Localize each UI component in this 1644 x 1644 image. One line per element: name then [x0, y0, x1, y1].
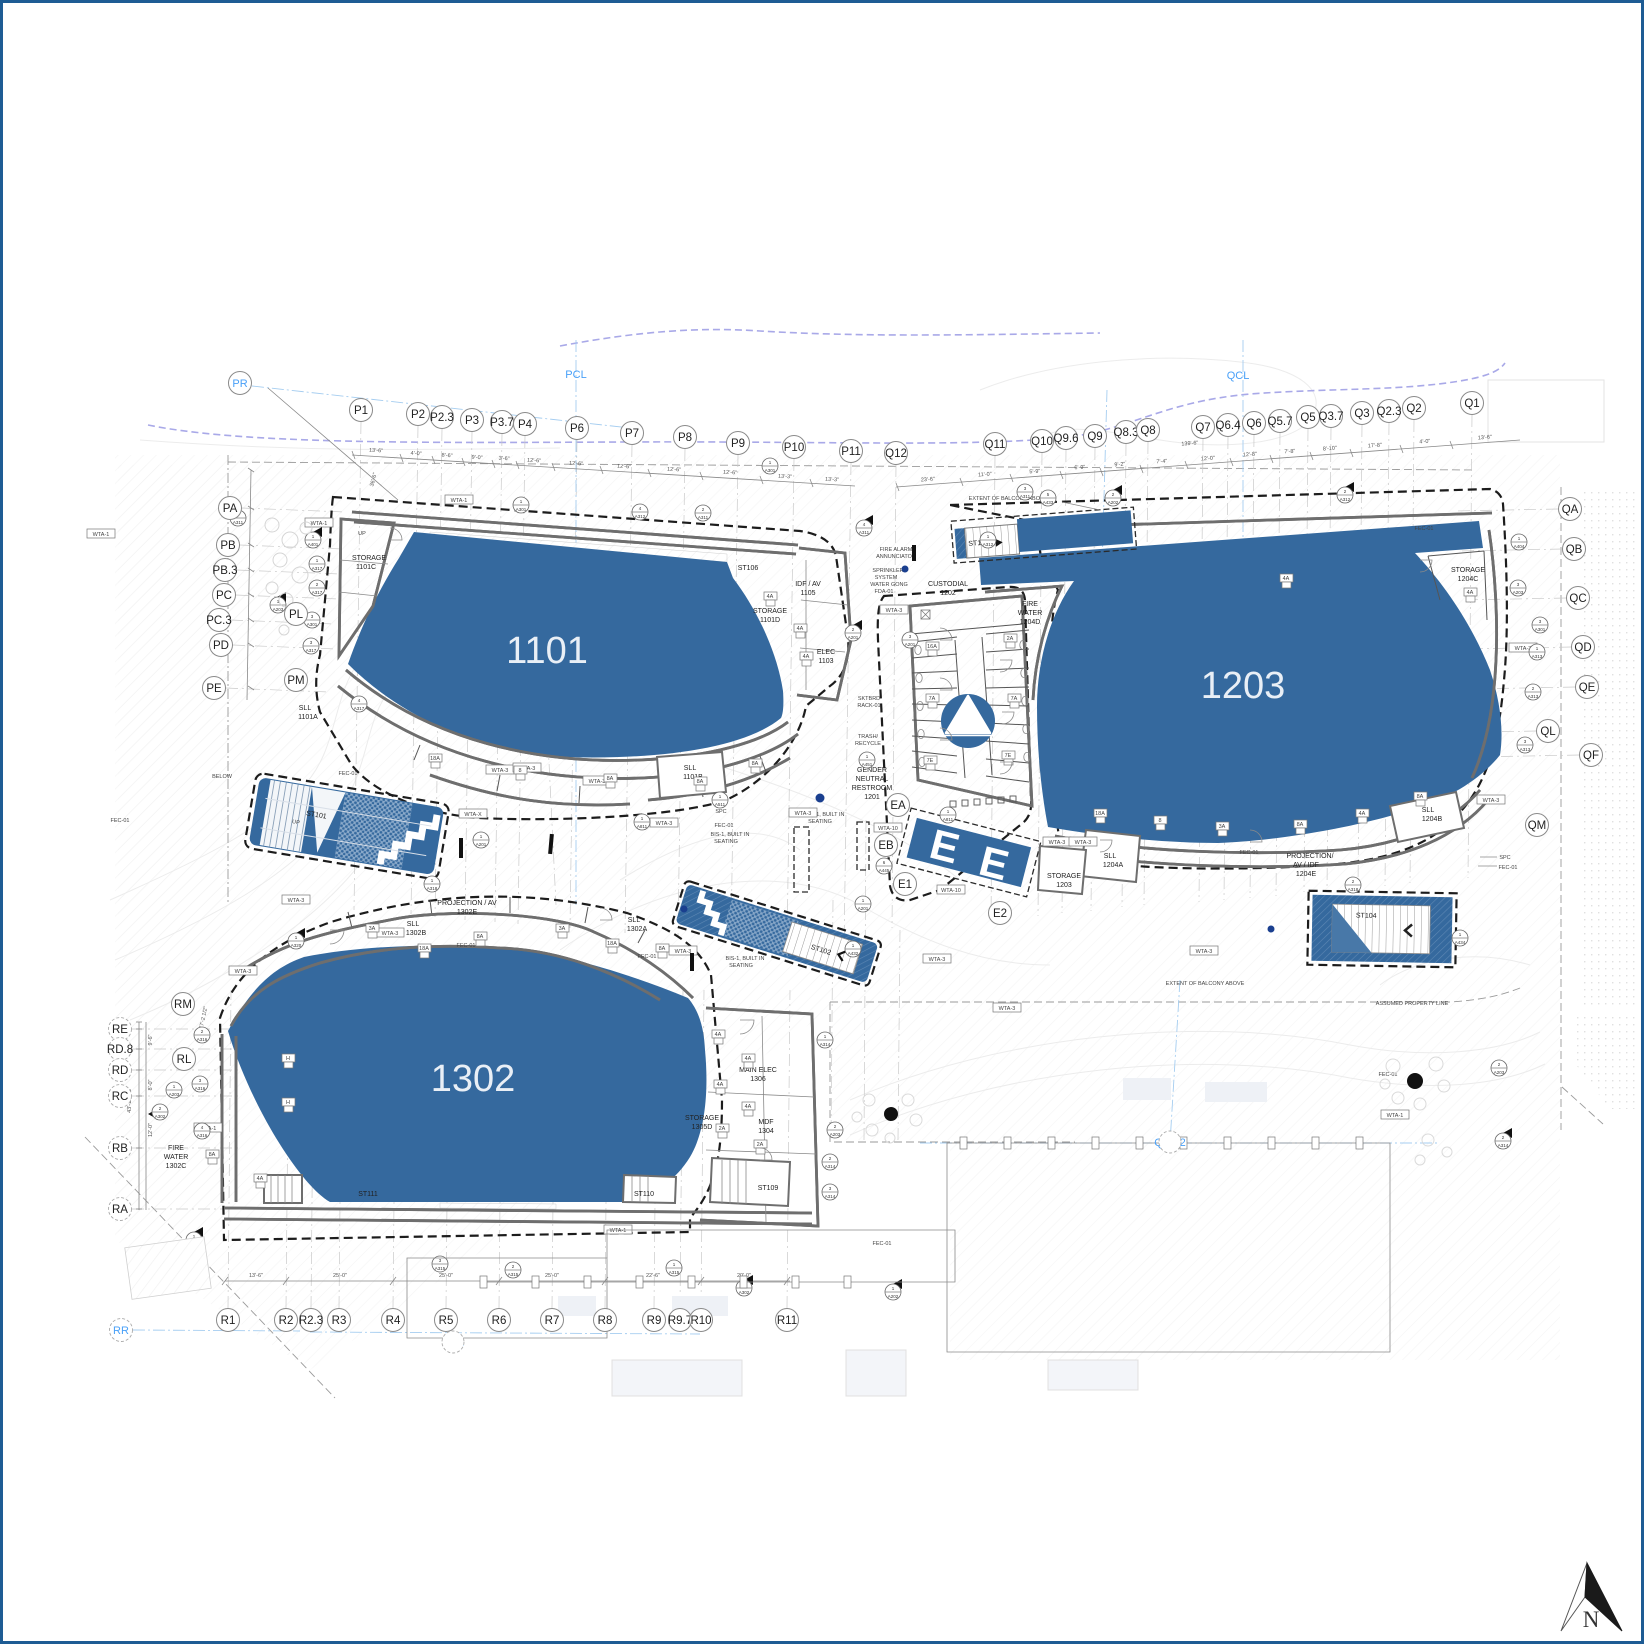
svg-text:R9.7: R9.7 — [668, 1315, 692, 1327]
svg-text:A313: A313 — [1532, 654, 1543, 659]
svg-text:A202: A202 — [888, 1294, 899, 1299]
svg-text:1204A: 1204A — [1103, 862, 1124, 869]
svg-text:H: H — [286, 1100, 290, 1106]
svg-text:WTA-3: WTA-3 — [886, 608, 903, 614]
svg-text:A811: A811 — [637, 824, 648, 829]
svg-text:12'-6": 12'-6" — [723, 470, 737, 477]
svg-text:FEC-01: FEC-01 — [111, 818, 130, 824]
svg-text:A201: A201 — [905, 642, 916, 647]
svg-text:8A: 8A — [1297, 822, 1304, 828]
svg-text:QD: QD — [1574, 642, 1591, 654]
svg-text:2A: 2A — [1007, 636, 1014, 642]
svg-text:7'-4": 7'-4" — [1156, 459, 1167, 466]
svg-text:13'-6": 13'-6" — [1478, 434, 1492, 441]
svg-text:WTA-3: WTA-3 — [675, 949, 692, 955]
svg-text:WTA-1: WTA-1 — [451, 498, 468, 504]
svg-text:18A: 18A — [1095, 811, 1105, 817]
svg-text:8A: 8A — [1417, 794, 1424, 800]
svg-text:3A: 3A — [559, 926, 566, 932]
svg-text:QF: QF — [1583, 750, 1599, 762]
svg-text:Q6.4: Q6.4 — [1216, 420, 1242, 432]
svg-text:Q9: Q9 — [1087, 431, 1102, 443]
svg-text:Q3.7: Q3.7 — [1319, 411, 1344, 423]
svg-text:Q12: Q12 — [885, 448, 907, 460]
svg-text:SPC: SPC — [715, 809, 726, 815]
svg-text:A313: A313 — [1520, 747, 1531, 752]
svg-text:A317: A317 — [312, 590, 323, 595]
svg-text:A311: A311 — [233, 520, 244, 525]
svg-text:P9: P9 — [731, 438, 745, 450]
svg-text:1306: 1306 — [750, 1076, 766, 1083]
svg-text:SKTBRD: SKTBRD — [858, 696, 880, 702]
svg-text:FEC-01: FEC-01 — [1499, 865, 1518, 871]
svg-text:A401: A401 — [308, 542, 319, 547]
svg-text:Q6: Q6 — [1246, 418, 1261, 430]
svg-text:A434: A434 — [1455, 940, 1466, 945]
svg-text:A404: A404 — [1514, 544, 1525, 549]
svg-text:WTA-3: WTA-3 — [1196, 949, 1213, 955]
svg-text:WTA-1: WTA-1 — [1387, 1113, 1404, 1119]
svg-text:A203: A203 — [169, 1092, 180, 1097]
svg-text:4A: 4A — [803, 654, 810, 660]
svg-text:FDA-01: FDA-01 — [875, 589, 894, 595]
svg-text:SLL: SLL — [684, 765, 697, 772]
svg-text:BIS-1, BUILT IN: BIS-1, BUILT IN — [726, 956, 765, 962]
svg-text:A203: A203 — [1494, 1070, 1505, 1075]
svg-text:A311: A311 — [859, 530, 870, 535]
svg-text:8A: 8A — [752, 761, 759, 767]
svg-text:ANNUNCIATOR: ANNUNCIATOR — [876, 554, 916, 560]
svg-text:PC.3: PC.3 — [206, 615, 232, 627]
svg-text:4A: 4A — [745, 1056, 752, 1062]
svg-text:QA: QA — [1562, 504, 1579, 516]
svg-text:WTA-3: WTA-3 — [288, 898, 305, 904]
svg-text:ASSUMED PROPERTY LINE: ASSUMED PROPERTY LINE — [1376, 1001, 1449, 1007]
svg-text:QC: QC — [1569, 593, 1586, 605]
svg-text:5'-9": 5'-9" — [1029, 469, 1040, 476]
svg-text:1204D: 1204D — [1020, 619, 1041, 626]
svg-text:4A: 4A — [1359, 811, 1366, 817]
svg-text:1202: 1202 — [940, 590, 956, 597]
svg-text:WTA-3: WTA-3 — [1075, 840, 1092, 846]
svg-text:FEC-01: FEC-01 — [873, 1241, 892, 1247]
svg-text:QCL: QCL — [1227, 370, 1250, 382]
svg-text:139'-6": 139'-6" — [1181, 440, 1199, 447]
svg-text:7E: 7E — [1005, 753, 1012, 759]
svg-text:PB: PB — [220, 540, 236, 552]
svg-text:A202: A202 — [1108, 500, 1119, 505]
svg-text:8A: 8A — [607, 776, 614, 782]
svg-text:P10: P10 — [784, 442, 804, 454]
svg-text:H: H — [286, 1056, 290, 1062]
svg-text:A312: A312 — [635, 514, 646, 519]
svg-text:A317: A317 — [312, 566, 323, 571]
svg-text:FIRE ALARM: FIRE ALARM — [880, 547, 913, 553]
svg-text:1203: 1203 — [1201, 665, 1286, 707]
svg-text:WTA-3: WTA-3 — [929, 957, 946, 963]
svg-text:A445: A445 — [879, 868, 890, 873]
svg-text:18A: 18A — [430, 756, 440, 762]
svg-text:1204E: 1204E — [1296, 871, 1317, 878]
svg-text:WTA-3: WTA-3 — [589, 779, 606, 785]
svg-text:PL: PL — [289, 609, 304, 621]
svg-text:A302: A302 — [739, 1290, 750, 1295]
svg-text:4A: 4A — [745, 1104, 752, 1110]
svg-text:QB: QB — [1566, 544, 1583, 556]
svg-text:22'-6": 22'-6" — [646, 1273, 660, 1279]
svg-text:WTA-10: WTA-10 — [941, 888, 961, 894]
svg-text:FEC-01: FEC-01 — [1415, 526, 1434, 532]
svg-text:R1: R1 — [221, 1315, 236, 1327]
svg-text:1103: 1103 — [818, 658, 833, 665]
svg-text:A314: A314 — [820, 1042, 831, 1047]
svg-text:SEATING: SEATING — [729, 963, 753, 969]
svg-text:A317: A317 — [354, 706, 365, 711]
svg-text:P1: P1 — [354, 405, 368, 417]
svg-text:STORAGE: STORAGE — [1047, 873, 1081, 880]
svg-text:9'-0": 9'-0" — [471, 455, 482, 462]
svg-text:P3.7: P3.7 — [490, 417, 514, 429]
svg-text:P6: P6 — [570, 423, 584, 435]
svg-text:WATER: WATER — [1018, 610, 1043, 617]
svg-text:25'-0": 25'-0" — [439, 1273, 453, 1279]
svg-text:WTA-1: WTA-1 — [311, 521, 328, 527]
svg-text:25'-0": 25'-0" — [545, 1273, 559, 1279]
svg-text:WTA-3: WTA-3 — [382, 931, 399, 937]
svg-text:PC: PC — [216, 590, 232, 602]
svg-text:6'-9": 6'-9" — [1074, 465, 1085, 472]
svg-text:A320: A320 — [291, 943, 302, 948]
svg-text:RD.8: RD.8 — [107, 1044, 133, 1056]
svg-text:P7: P7 — [625, 428, 639, 440]
svg-text:12'-6": 12'-6" — [527, 458, 541, 465]
svg-text:R6: R6 — [492, 1315, 507, 1327]
svg-text:A316: A316 — [195, 1086, 206, 1091]
svg-text:A433: A433 — [1043, 500, 1054, 505]
svg-text:A315: A315 — [435, 1266, 446, 1271]
svg-text:ST109: ST109 — [758, 1185, 779, 1192]
svg-text:SPC: SPC — [1499, 855, 1510, 861]
svg-text:1302: 1302 — [431, 1058, 516, 1100]
svg-text:P2: P2 — [411, 409, 425, 421]
svg-text:Q1: Q1 — [1464, 398, 1479, 410]
svg-text:A312: A312 — [983, 542, 994, 547]
svg-text:EXTENT OF BALCONY ABOVE: EXTENT OF BALCONY ABOVE — [969, 496, 1048, 502]
svg-text:ST110: ST110 — [634, 1191, 654, 1198]
svg-text:4A: 4A — [767, 594, 774, 600]
svg-text:E1: E1 — [898, 879, 912, 891]
svg-text:1101D: 1101D — [760, 617, 780, 624]
svg-text:4A: 4A — [1283, 576, 1290, 582]
svg-text:EB: EB — [878, 840, 894, 852]
svg-text:FEC-01: FEC-01 — [715, 823, 734, 829]
svg-text:SLL: SLL — [1104, 853, 1117, 860]
svg-text:A301: A301 — [516, 507, 527, 512]
svg-text:ST111: ST111 — [358, 1191, 378, 1198]
svg-text:WTA-1: WTA-1 — [93, 532, 110, 538]
svg-text:A317: A317 — [306, 648, 317, 653]
svg-text:RA: RA — [112, 1204, 128, 1216]
svg-text:3A: 3A — [369, 926, 376, 932]
svg-text:BIS-1, BUILT IN: BIS-1, BUILT IN — [711, 832, 750, 838]
svg-text:4A: 4A — [1467, 590, 1474, 596]
svg-text:4A: 4A — [257, 1176, 264, 1182]
svg-text:WTA-3: WTA-3 — [999, 1006, 1016, 1012]
svg-text:17'-8": 17'-8" — [1368, 442, 1382, 449]
svg-text:1204B: 1204B — [1422, 816, 1443, 823]
svg-text:1302B: 1302B — [406, 930, 427, 937]
svg-text:A311: A311 — [1020, 494, 1031, 499]
svg-text:STORAGE: STORAGE — [753, 608, 787, 615]
svg-text:1201: 1201 — [864, 794, 880, 801]
svg-text:E2: E2 — [993, 908, 1007, 920]
svg-text:RL: RL — [177, 1054, 192, 1066]
svg-text:A312: A312 — [1340, 497, 1351, 502]
svg-text:A311: A311 — [698, 515, 709, 520]
svg-text:TRASH/: TRASH/ — [858, 734, 879, 740]
svg-text:A451: A451 — [862, 762, 873, 767]
svg-text:Q10: Q10 — [1031, 436, 1053, 448]
svg-text:SLL: SLL — [628, 917, 641, 924]
svg-text:SLL: SLL — [407, 921, 420, 928]
svg-text:FIRE: FIRE — [1022, 601, 1038, 608]
svg-text:9'-6": 9'-6" — [148, 1034, 154, 1045]
svg-text:SEATING: SEATING — [714, 839, 738, 845]
svg-text:PM: PM — [287, 675, 304, 687]
svg-text:FEC-01: FEC-01 — [638, 954, 657, 960]
svg-text:SYSTEM: SYSTEM — [875, 575, 898, 581]
svg-text:A203: A203 — [830, 1132, 841, 1137]
svg-text:SEATING: SEATING — [808, 819, 832, 825]
svg-text:1203: 1203 — [1056, 882, 1072, 889]
svg-text:RESTROOM: RESTROOM — [852, 785, 893, 792]
svg-text:16A: 16A — [927, 644, 937, 650]
svg-text:4'-0": 4'-0" — [410, 451, 421, 458]
svg-text:1101A: 1101A — [298, 714, 318, 721]
svg-text:A315: A315 — [508, 1272, 519, 1277]
svg-text:A432: A432 — [848, 951, 859, 956]
svg-text:IDF / AV: IDF / AV — [795, 581, 821, 588]
svg-text:FEC-01: FEC-01 — [1240, 850, 1259, 856]
svg-text:A201: A201 — [476, 842, 487, 847]
svg-text:7A: 7A — [1011, 696, 1018, 702]
svg-text:P8: P8 — [678, 432, 692, 444]
svg-text:13'-6": 13'-6" — [369, 448, 383, 455]
svg-text:SLL: SLL — [1422, 807, 1435, 814]
svg-text:12'-0": 12'-0" — [1201, 455, 1215, 462]
svg-text:Q3: Q3 — [1354, 408, 1369, 420]
svg-text:P4: P4 — [518, 419, 533, 431]
svg-text:RM: RM — [174, 999, 192, 1011]
svg-text:2A: 2A — [757, 1142, 764, 1148]
svg-text:WTA-3: WTA-3 — [656, 821, 673, 827]
svg-text:CUSTODIAL: CUSTODIAL — [928, 581, 968, 588]
svg-text:Q11: Q11 — [985, 439, 1006, 451]
svg-text:12'-6": 12'-6" — [569, 461, 583, 468]
svg-text:PR: PR — [232, 378, 247, 390]
svg-text:8A: 8A — [659, 946, 666, 952]
svg-text:A316: A316 — [197, 1037, 208, 1042]
svg-text:A301: A301 — [765, 468, 776, 473]
svg-text:WATER: WATER — [164, 1154, 189, 1161]
svg-text:A314: A314 — [1498, 1143, 1509, 1148]
svg-text:PROJECTION / AV: PROJECTION / AV — [437, 900, 497, 907]
svg-text:RC: RC — [112, 1091, 129, 1103]
svg-text:13'-3": 13'-3" — [778, 474, 792, 481]
svg-text:7'-8": 7'-8" — [1284, 449, 1295, 456]
svg-text:PCL: PCL — [565, 369, 586, 381]
svg-text:RE: RE — [112, 1024, 128, 1036]
svg-text:BELOW: BELOW — [212, 774, 233, 780]
svg-text:A313: A313 — [1528, 694, 1539, 699]
svg-text:13'-6": 13'-6" — [249, 1273, 263, 1279]
svg-text:PROJECTION/: PROJECTION/ — [1286, 853, 1333, 860]
svg-text:A301: A301 — [307, 622, 318, 627]
svg-text:WTA-3: WTA-3 — [492, 768, 509, 774]
svg-text:3A: 3A — [1219, 824, 1226, 830]
svg-text:GENDER: GENDER — [857, 767, 887, 774]
svg-text:8A: 8A — [697, 779, 704, 785]
svg-text:A811: A811 — [943, 817, 954, 822]
svg-text:ELEC: ELEC — [817, 649, 835, 656]
svg-text:4A: 4A — [717, 1082, 724, 1088]
svg-text:SPRINKLER: SPRINKLER — [872, 568, 903, 574]
svg-text:ST106: ST106 — [738, 565, 759, 572]
svg-text:P11: P11 — [841, 446, 861, 458]
svg-text:QL: QL — [1540, 726, 1556, 738]
svg-text:P3: P3 — [465, 415, 479, 427]
svg-text:1105: 1105 — [800, 590, 815, 597]
svg-text:STORAGE: STORAGE — [685, 1115, 719, 1122]
svg-text:FEC-01: FEC-01 — [457, 943, 476, 949]
svg-text:STORAGE: STORAGE — [352, 555, 386, 562]
svg-text:4A: 4A — [715, 1032, 722, 1038]
svg-text:8A: 8A — [209, 1152, 216, 1158]
svg-text:8'-10": 8'-10" — [1323, 445, 1337, 452]
svg-text:12'-8": 12'-8" — [1243, 451, 1257, 458]
svg-text:WTA-3: WTA-3 — [1483, 798, 1500, 804]
svg-text:WTA-10: WTA-10 — [878, 826, 898, 832]
svg-text:R11: R11 — [777, 1315, 797, 1327]
svg-text:8'-6": 8'-6" — [441, 453, 452, 460]
svg-text:AV / IDF: AV / IDF — [1293, 862, 1319, 869]
svg-text:A314: A314 — [825, 1164, 836, 1169]
svg-text:8: 8 — [518, 768, 521, 774]
svg-text:A201: A201 — [858, 906, 869, 911]
svg-text:A203: A203 — [273, 607, 284, 612]
svg-text:8'-0": 8'-0" — [148, 1079, 154, 1090]
svg-text:Q2: Q2 — [1406, 403, 1421, 415]
svg-text:Q9.6: Q9.6 — [1054, 433, 1079, 445]
svg-text:8: 8 — [1158, 818, 1161, 824]
svg-text:QM: QM — [1528, 820, 1547, 832]
svg-text:Q7: Q7 — [1195, 422, 1210, 434]
svg-text:Q5.7: Q5.7 — [1268, 416, 1293, 428]
svg-text:1302A: 1302A — [627, 926, 648, 933]
svg-text:PB.3: PB.3 — [213, 565, 238, 577]
svg-text:PE: PE — [206, 683, 222, 695]
svg-text:WTA-3: WTA-3 — [235, 969, 252, 975]
svg-text:PA: PA — [223, 503, 238, 515]
svg-text:WTA-3: WTA-3 — [1049, 840, 1066, 846]
svg-text:WTA-1: WTA-1 — [610, 1228, 627, 1234]
svg-text:R3: R3 — [332, 1315, 347, 1327]
svg-text:FIRE: FIRE — [168, 1145, 184, 1152]
svg-text:A314: A314 — [825, 1194, 836, 1199]
svg-text:A302: A302 — [155, 1114, 166, 1119]
svg-text:WATER GONG: WATER GONG — [870, 582, 908, 588]
svg-text:12'-6": 12'-6" — [667, 467, 681, 474]
svg-text:12'-6": 12'-6" — [617, 464, 631, 471]
svg-text:N: N — [1583, 1607, 1600, 1632]
svg-text:Q8.3: Q8.3 — [1114, 427, 1139, 439]
svg-text:25'-0": 25'-0" — [333, 1273, 347, 1279]
svg-text:1101C: 1101C — [356, 564, 376, 571]
svg-text:1304: 1304 — [758, 1128, 774, 1135]
svg-text:QE: QE — [1579, 682, 1596, 694]
svg-text:RD: RD — [112, 1065, 129, 1077]
svg-text:1302C: 1302C — [166, 1163, 187, 1170]
svg-text:Q2.3: Q2.3 — [1377, 406, 1402, 418]
svg-text:ST104: ST104 — [1356, 913, 1377, 920]
svg-text:2A: 2A — [719, 1126, 726, 1132]
svg-text:23'-6": 23'-6" — [921, 476, 935, 483]
svg-text:A316: A316 — [197, 1133, 208, 1138]
svg-text:NEUTRAL: NEUTRAL — [856, 776, 889, 783]
svg-text:WTA-X: WTA-X — [464, 812, 482, 818]
svg-text:STORAGE: STORAGE — [1451, 567, 1485, 574]
svg-text:R8: R8 — [598, 1315, 613, 1327]
svg-text:R9: R9 — [647, 1315, 662, 1327]
svg-text:RECYCLE: RECYCLE — [855, 741, 881, 747]
svg-text:FEC-01: FEC-01 — [339, 771, 358, 777]
svg-text:7A: 7A — [929, 696, 936, 702]
svg-text:SLL: SLL — [299, 705, 312, 712]
svg-text:UP: UP — [358, 531, 366, 537]
svg-text:3'-6": 3'-6" — [498, 456, 509, 463]
svg-text:1204C: 1204C — [1458, 576, 1479, 583]
svg-text:R2.3: R2.3 — [299, 1315, 323, 1327]
svg-text:A301: A301 — [1535, 627, 1546, 632]
svg-text:R4: R4 — [386, 1315, 401, 1327]
svg-text:1305D: 1305D — [692, 1124, 713, 1131]
svg-text:RR: RR — [113, 1325, 129, 1337]
svg-text:EXTENT OF BALCONY ABOVE: EXTENT OF BALCONY ABOVE — [1166, 981, 1245, 987]
svg-text:R10: R10 — [690, 1315, 711, 1327]
svg-text:8A: 8A — [477, 934, 484, 940]
svg-text:EA: EA — [890, 800, 906, 812]
svg-text:A201: A201 — [848, 635, 859, 640]
svg-text:7E: 7E — [927, 758, 934, 764]
svg-text:MDF: MDF — [758, 1119, 773, 1126]
svg-text:R7: R7 — [545, 1315, 560, 1327]
svg-text:18A: 18A — [607, 941, 617, 947]
svg-text:RB: RB — [112, 1143, 128, 1155]
svg-text:11'-0": 11'-0" — [978, 471, 992, 478]
svg-text:R2: R2 — [279, 1315, 294, 1327]
svg-text:A318: A318 — [1348, 887, 1359, 892]
svg-text:A315: A315 — [669, 1270, 680, 1275]
svg-text:A203: A203 — [1513, 590, 1524, 595]
svg-text:13'-3": 13'-3" — [825, 477, 839, 484]
svg-text:1101: 1101 — [506, 630, 588, 672]
svg-text:A318: A318 — [427, 886, 438, 891]
svg-text:WTA-3: WTA-3 — [795, 811, 812, 817]
svg-text:4'-0": 4'-0" — [1419, 439, 1430, 446]
svg-text:9'-2": 9'-2" — [1114, 462, 1125, 469]
svg-text:PD: PD — [213, 640, 229, 652]
svg-text:12'-0": 12'-0" — [148, 1123, 154, 1137]
